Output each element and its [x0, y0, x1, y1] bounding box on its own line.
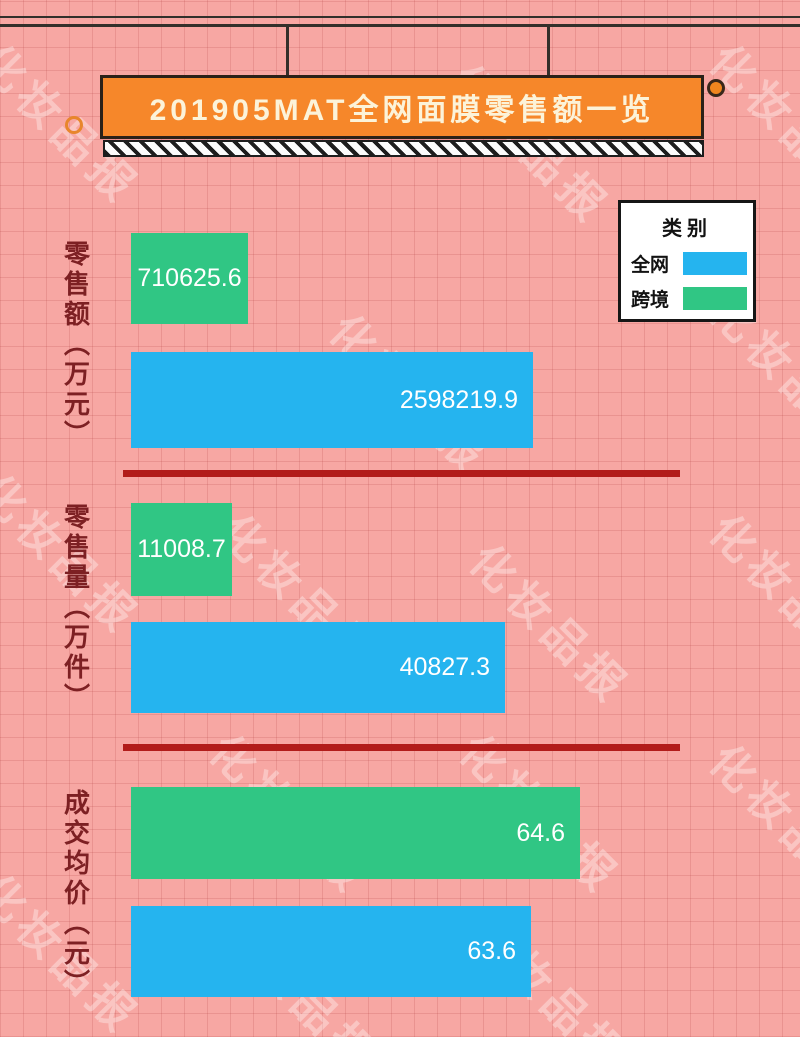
bar-average-price-quanwang: 63.6 — [131, 906, 531, 997]
legend-label-quanwang: 全网 — [631, 250, 675, 277]
legend-swatch-green — [683, 287, 747, 310]
bar-retail-volume-quanwang: 40827.3 — [131, 622, 505, 713]
legend-label-kuajing: 跨境 — [631, 285, 675, 312]
legend-item-kuajing: 跨境 — [621, 285, 753, 312]
section-divider — [123, 744, 680, 751]
infographic-canvas: 化妆品报 化妆品报 化妆品报 化妆品报 化妆品报 化妆品报 化妆品报 化妆品报 … — [0, 0, 800, 1037]
watermark: 化妆品报 — [697, 727, 800, 917]
category-label-retail-volume: 零售量（万件） — [54, 500, 98, 716]
watermark: 化妆品报 — [697, 27, 800, 217]
bar-average-price-kuajing: 64.6 — [131, 787, 580, 879]
dot-decoration-icon — [707, 79, 725, 97]
bar-value-label: 11008.7 — [131, 535, 232, 564]
legend-title: 类别 — [621, 212, 753, 241]
legend: 类别 全网 跨境 — [618, 200, 756, 322]
bar-value-label: 710625.6 — [131, 264, 248, 293]
bar-retail-sales-quanwang: 2598219.9 — [131, 352, 533, 448]
section-divider — [123, 470, 680, 477]
banner-hanger-left — [286, 26, 289, 76]
bar-retail-volume-kuajing: 11008.7 — [131, 503, 232, 596]
category-label-text: 零售量（万件） — [58, 503, 95, 713]
category-label-text: 成交均价（元） — [58, 789, 95, 999]
bar-retail-sales-kuajing: 710625.6 — [131, 233, 248, 324]
top-rule-thick — [0, 24, 800, 27]
bar-value-label: 40827.3 — [131, 653, 505, 682]
category-label-retail-sales: 零售额（万元） — [54, 232, 98, 458]
legend-item-quanwang: 全网 — [621, 250, 753, 277]
bar-value-label: 64.6 — [131, 819, 580, 848]
title-banner: 201905MAT全网面膜零售额一览 — [100, 75, 704, 139]
top-rule-thin — [0, 16, 800, 18]
category-label-text: 零售额（万元） — [58, 240, 95, 450]
category-label-average-price: 成交均价（元） — [54, 786, 98, 1002]
bar-value-label: 63.6 — [131, 937, 531, 966]
bar-value-label: 2598219.9 — [131, 386, 533, 415]
banner-hanger-right — [547, 26, 550, 76]
watermark: 化妆品报 — [697, 497, 800, 687]
page-title: 201905MAT全网面膜零售额一览 — [150, 85, 655, 129]
ring-decoration-icon — [65, 116, 83, 134]
hatch-stripe — [103, 140, 704, 157]
legend-swatch-blue — [683, 252, 747, 275]
